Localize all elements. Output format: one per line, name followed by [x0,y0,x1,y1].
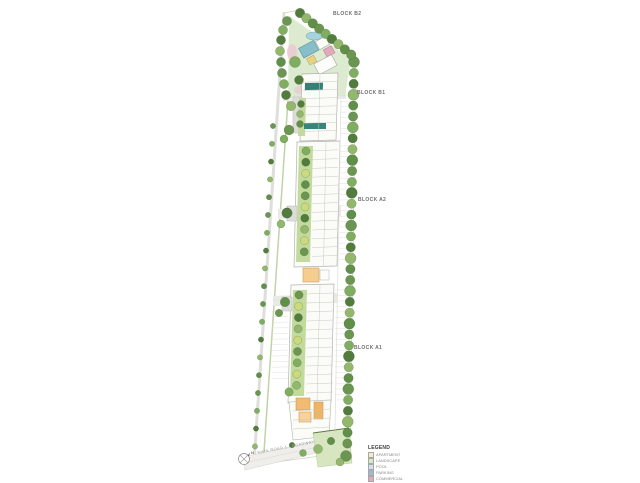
block-b2-label: BLOCK B2 [333,11,361,17]
legend-swatch-commercial [368,476,374,482]
tower-a2 [287,141,340,267]
legend-row: COMMERCIAL [368,477,428,482]
block-a2-label: BLOCK A2 [358,197,386,203]
legend-label: COMMERCIAL [376,477,403,481]
compass-north-label: N [251,450,254,455]
legend-row: LANDSCAPE [368,459,428,464]
legend: LEGEND APARTMENT LANDSCAPE POOL PARKING … [368,445,428,483]
site-plan-graphic [0,0,640,480]
legend-row: POOL [368,465,428,470]
block-a1-label: BLOCK A1 [354,345,382,351]
site-master-plan: BLOCK B2 BLOCK B1 BLOCK A2 BLOCK A1 MAIN… [0,0,640,480]
legend-title: LEGEND [368,445,428,451]
legend-label: APARTMENT [376,453,400,457]
legend-label: POOL [376,465,387,469]
block-b1-label: BLOCK B1 [357,90,385,96]
amenity-block [303,268,329,282]
legend-label: PARKING [376,471,394,475]
legend-row: APARTMENT [368,453,428,458]
legend-label: LANDSCAPE [376,459,400,463]
legend-row: PARKING [368,471,428,476]
